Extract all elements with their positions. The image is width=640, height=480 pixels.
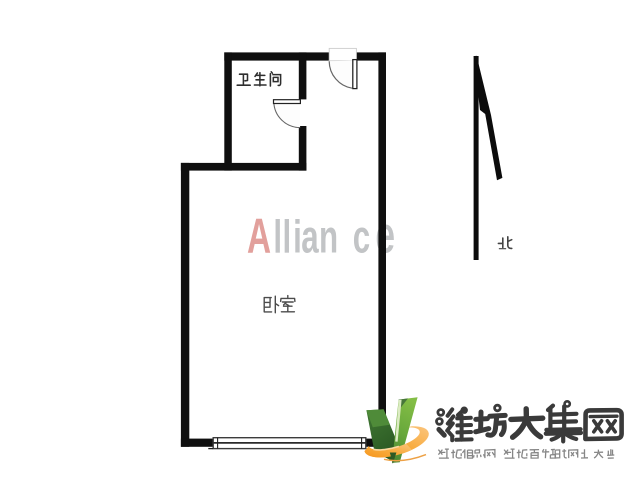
svg-text:A: A xyxy=(247,208,271,263)
svg-text:n: n xyxy=(319,212,338,263)
svg-text:a: a xyxy=(301,212,319,263)
svg-text:c: c xyxy=(353,212,370,263)
svg-text:i: i xyxy=(293,212,302,263)
svg-text:l: l xyxy=(282,212,291,263)
svg-text:l: l xyxy=(273,212,282,263)
